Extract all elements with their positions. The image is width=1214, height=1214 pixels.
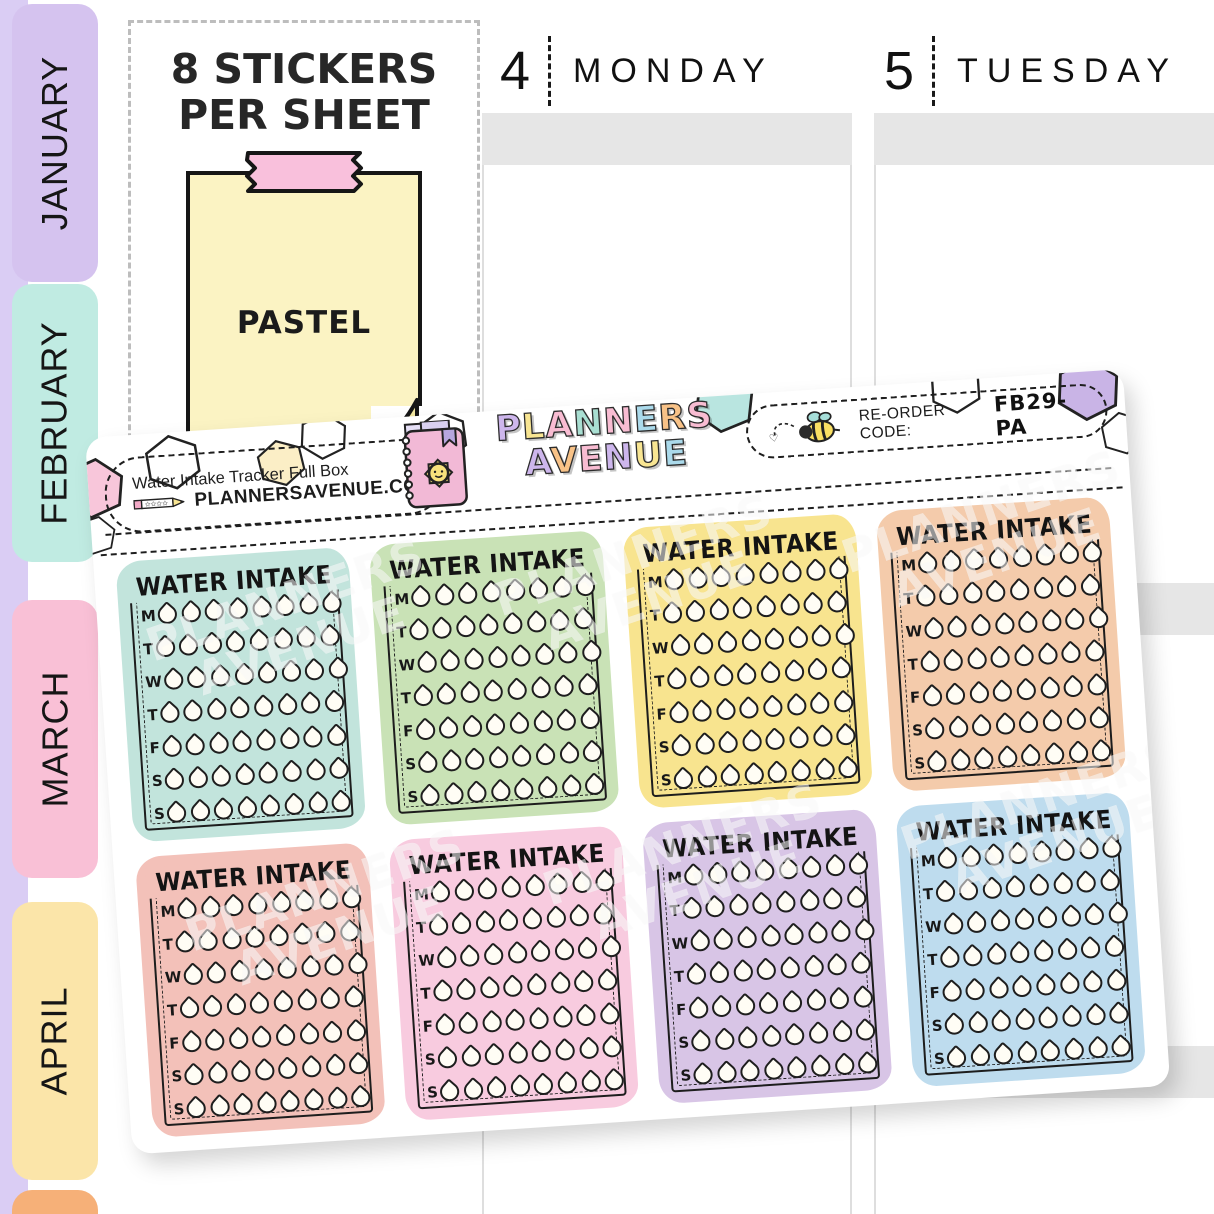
water-drop-icon xyxy=(182,732,209,759)
water-drop-icon xyxy=(504,677,531,704)
water-drop-icon xyxy=(251,1057,278,1084)
sticker-sheet: Water Intake Tracker Full Box ✩✩✩✩ PLANN… xyxy=(85,369,1170,1154)
water-drop-icon xyxy=(1056,971,1083,998)
water-drop-icon xyxy=(523,973,550,1000)
water-drop-icon xyxy=(919,683,946,710)
water-drop-icon xyxy=(714,630,741,657)
day-letter: F xyxy=(676,1001,687,1020)
water-drop-icon xyxy=(429,616,456,643)
tracker-rows: MTWTFSS xyxy=(901,543,1110,773)
water-drop-icon xyxy=(1099,835,1126,862)
water-drop-icon xyxy=(759,694,786,721)
pencil-icon: ✩✩✩✩ xyxy=(133,491,187,514)
water-drop-icon xyxy=(725,893,752,920)
water-drop-icon xyxy=(938,979,965,1006)
water-drop-icon xyxy=(523,610,550,637)
water-drop-icon xyxy=(429,979,456,1006)
water-drop-icon xyxy=(710,927,737,954)
day-letter: T xyxy=(673,967,684,986)
month-tab-april: APRIL xyxy=(12,902,98,1180)
day-letter: S xyxy=(171,1067,183,1086)
water-drop-icon xyxy=(161,767,188,794)
water-drop-icon xyxy=(688,1028,715,1055)
day-letter: F xyxy=(403,722,414,741)
water-drop-icon xyxy=(944,615,971,642)
planners-avenue-logo: PLANNERS AVENUE xyxy=(472,397,738,486)
water-drop-icon xyxy=(1011,644,1038,671)
water-drop-icon xyxy=(472,910,499,937)
tracker-row: F xyxy=(656,692,852,724)
day-letter: T xyxy=(147,706,158,725)
water-drop-icon xyxy=(252,727,279,754)
water-drop-icon xyxy=(1013,677,1040,704)
water-drop-icon xyxy=(940,912,967,939)
water-drop-icon xyxy=(223,993,250,1020)
day-letter: M xyxy=(394,589,410,608)
water-drop-icon xyxy=(505,1041,532,1068)
water-drop-icon xyxy=(668,733,695,760)
day-letter: W xyxy=(905,622,923,641)
water-drop-icon xyxy=(940,649,967,676)
water-drop-icon xyxy=(983,579,1010,606)
tracker-row: T xyxy=(400,676,596,708)
water-drop-icon xyxy=(156,701,183,728)
water-drop-icon xyxy=(531,642,558,669)
tracker-row: F xyxy=(676,988,872,1020)
bee-icon: ♡ xyxy=(765,401,851,458)
day-letter: S xyxy=(405,755,417,774)
reorder-code: FB29-PA xyxy=(993,387,1087,441)
water-drop-icon xyxy=(1081,903,1108,930)
water-drop-icon xyxy=(800,954,827,981)
water-drop-icon xyxy=(682,599,709,626)
water-drop-icon xyxy=(195,928,222,955)
water-drop-icon xyxy=(457,681,484,708)
water-drop-icon xyxy=(484,646,511,673)
water-drop-icon xyxy=(339,885,366,912)
water-drop-icon xyxy=(659,601,686,628)
water-drop-icon xyxy=(175,633,202,660)
water-drop-icon xyxy=(506,711,533,738)
tracker-row: T xyxy=(396,610,592,642)
tracker-row: T xyxy=(669,889,865,921)
water-intake-sticker-peach: WATER INTAKEMTWTFSS xyxy=(876,496,1127,792)
water-drop-icon xyxy=(575,1036,602,1063)
water-drop-icon xyxy=(776,593,803,620)
water-drop-icon xyxy=(798,855,825,882)
logo-letter: U xyxy=(632,434,664,476)
water-drop-icon xyxy=(502,1007,529,1034)
water-drop-icon xyxy=(457,944,484,971)
water-drop-icon xyxy=(965,1010,992,1037)
water-drop-icon xyxy=(751,858,778,885)
water-drop-icon xyxy=(201,1027,228,1054)
water-drop-icon xyxy=(254,661,281,688)
water-drop-icon xyxy=(1105,901,1132,928)
water-drop-icon xyxy=(1030,576,1057,603)
tracker-row: T xyxy=(142,627,338,659)
water-drop-icon xyxy=(691,632,718,659)
water-drop-icon xyxy=(528,1039,555,1066)
water-drop-icon xyxy=(772,890,799,917)
water-drop-icon xyxy=(785,626,812,653)
water-drop-icon xyxy=(962,547,989,574)
water-drop-icon xyxy=(555,641,582,668)
water-drop-icon xyxy=(222,630,249,657)
water-drop-icon xyxy=(532,742,559,769)
water-drop-icon xyxy=(1079,540,1106,567)
water-drop-icon xyxy=(1009,544,1036,571)
water-drop-icon xyxy=(525,576,552,603)
tracker-rows: MTWTFSS xyxy=(394,577,603,807)
logo-letter: N xyxy=(602,436,635,478)
water-drop-icon xyxy=(160,667,187,694)
tracker-row: T xyxy=(420,972,616,1004)
tracker-row: F xyxy=(909,676,1105,708)
water-drop-icon xyxy=(704,861,731,888)
water-drop-icon xyxy=(708,994,735,1021)
water-drop-icon xyxy=(728,860,755,887)
water-drop-icon xyxy=(578,639,605,666)
water-drop-icon xyxy=(979,876,1006,903)
water-drop-icon xyxy=(152,634,179,661)
water-drop-icon xyxy=(293,988,320,1015)
day-letter: T xyxy=(167,1001,178,1020)
day-letter: F xyxy=(422,1017,433,1036)
logo-letter: E xyxy=(577,438,605,480)
water-drop-icon xyxy=(959,581,986,608)
water-drop-icon xyxy=(546,608,573,635)
water-drop-icon xyxy=(824,953,851,980)
water-drop-icon xyxy=(278,659,305,686)
water-drop-icon xyxy=(826,986,853,1013)
water-drop-icon xyxy=(992,712,1019,739)
water-drop-icon xyxy=(828,919,855,946)
logo-letter: A xyxy=(524,442,552,484)
tracker-rows: MTWTFSS xyxy=(140,594,349,824)
water-drop-icon xyxy=(753,594,780,621)
day-letter: S xyxy=(407,788,419,807)
water-drop-icon xyxy=(678,896,705,923)
water-drop-icon xyxy=(500,974,527,1001)
water-drop-icon xyxy=(689,698,716,725)
water-drop-icon xyxy=(845,852,872,879)
day-letter: T xyxy=(927,951,938,970)
tracker-row: W xyxy=(671,922,867,954)
day-letter: W xyxy=(418,951,436,970)
water-drop-icon xyxy=(178,1029,205,1056)
water-drop-icon xyxy=(687,929,714,956)
water-drop-icon xyxy=(753,958,780,985)
water-drop-icon xyxy=(556,740,583,767)
water-drop-icon xyxy=(452,614,479,641)
day-header-tuesday: 5TUESDAY xyxy=(884,34,1178,108)
promo-heading: 8 STICKERS PER SHEET xyxy=(131,47,477,139)
water-drop-icon xyxy=(739,728,766,755)
water-drop-icon xyxy=(691,731,718,758)
water-drop-icon xyxy=(451,878,478,905)
water-intake-sticker-green: WATER INTAKEMTWTFSS xyxy=(369,530,620,826)
day-letter: T xyxy=(400,689,411,708)
tracker-row: S xyxy=(658,726,854,758)
water-drop-icon xyxy=(1052,838,1079,865)
water-drop-icon xyxy=(702,895,729,922)
water-drop-icon xyxy=(437,649,464,676)
water-drop-icon xyxy=(936,582,963,609)
water-drop-icon xyxy=(301,658,328,685)
water-drop-icon xyxy=(708,564,735,591)
water-intake-sticker-teal: WATER INTAKEMTWTFSS xyxy=(115,547,366,843)
water-drop-icon xyxy=(292,889,319,916)
water-drop-icon xyxy=(661,567,688,594)
water-drop-icon xyxy=(667,633,694,660)
water-drop-icon xyxy=(681,863,708,890)
day-header-monday: 4MONDAY xyxy=(500,34,774,108)
tracker-rows: MTWTFSS xyxy=(647,560,856,790)
water-drop-icon xyxy=(822,853,849,880)
water-drop-icon xyxy=(174,896,201,923)
water-drop-icon xyxy=(916,650,943,677)
water-drop-icon xyxy=(197,895,224,922)
water-drop-icon xyxy=(319,1020,346,1047)
water-drop-icon xyxy=(246,628,273,655)
water-drop-icon xyxy=(938,549,965,576)
day-letter: S xyxy=(154,805,166,824)
water-drop-icon xyxy=(171,930,198,957)
water-drop-icon xyxy=(706,961,733,988)
water-drop-icon xyxy=(804,921,831,948)
water-drop-icon xyxy=(1049,871,1076,898)
water-drop-icon xyxy=(736,695,763,722)
water-drop-icon xyxy=(203,697,230,724)
day-letter: S xyxy=(151,772,163,791)
water-drop-icon xyxy=(199,631,226,658)
water-drop-icon xyxy=(779,989,806,1016)
water-drop-icon xyxy=(455,581,482,608)
water-drop-icon xyxy=(255,760,282,787)
tracker-row: S xyxy=(171,1055,367,1087)
water-drop-icon xyxy=(964,647,991,674)
water-drop-icon xyxy=(549,1004,576,1031)
water-drop-icon xyxy=(227,696,254,723)
water-drop-icon xyxy=(433,946,460,973)
water-drop-icon xyxy=(521,873,548,900)
reorder-label: RE-ORDER CODE: xyxy=(858,399,984,443)
water-drop-icon xyxy=(204,1060,231,1087)
water-drop-icon xyxy=(1063,707,1090,734)
water-drop-icon xyxy=(289,922,316,949)
water-drop-icon xyxy=(476,976,503,1003)
water-drop-icon xyxy=(242,925,269,952)
water-drop-icon xyxy=(272,1023,299,1050)
day-letter: T xyxy=(922,884,933,903)
month-tab-february: FEBRUARY xyxy=(12,284,98,562)
water-drop-icon xyxy=(455,1011,482,1038)
tracker-row: W xyxy=(925,905,1121,937)
water-drop-icon xyxy=(225,1026,252,1053)
water-drop-icon xyxy=(735,1025,762,1052)
water-drop-icon xyxy=(208,764,235,791)
water-drop-icon xyxy=(806,691,833,718)
water-drop-icon xyxy=(962,977,989,1004)
water-drop-icon xyxy=(955,878,982,905)
water-intake-sticker-pink: WATER INTAKEMTWTFSS xyxy=(388,825,639,1121)
water-drop-icon xyxy=(985,546,1012,573)
water-drop-icon xyxy=(757,661,784,688)
water-drop-icon xyxy=(276,726,303,753)
tracker-row: S xyxy=(912,709,1108,741)
day-letter: S xyxy=(427,1084,439,1103)
day-letter: S xyxy=(680,1067,692,1086)
day-letter: F xyxy=(909,688,920,707)
water-drop-icon xyxy=(526,1006,553,1033)
water-drop-icon xyxy=(711,1027,738,1054)
tracker-row: W xyxy=(418,938,614,970)
month-tab-march: MARCH xyxy=(12,600,98,878)
water-drop-icon xyxy=(504,941,531,968)
water-drop-icon xyxy=(1054,938,1081,965)
water-drop-icon xyxy=(1080,969,1107,996)
water-drop-icon xyxy=(248,595,275,622)
water-drop-icon xyxy=(218,927,245,954)
water-drop-icon xyxy=(781,922,808,949)
water-drop-icon xyxy=(458,1044,485,1071)
tracker-row: F xyxy=(929,971,1125,1003)
water-drop-icon xyxy=(272,593,299,620)
water-drop-icon xyxy=(987,645,1014,672)
water-drop-icon xyxy=(319,590,346,617)
water-drop-icon xyxy=(1034,906,1061,933)
water-drop-icon xyxy=(474,876,501,903)
water-drop-icon xyxy=(485,745,512,772)
water-drop-icon xyxy=(553,707,580,734)
day-number: 4 xyxy=(500,40,530,102)
product-image: JANUARYFEBRUARYMARCHAPRIL 4MONDAY5TUESDA… xyxy=(0,0,1214,1214)
tracker-row: S xyxy=(931,1004,1127,1036)
water-drop-icon xyxy=(915,551,942,578)
water-drop-icon xyxy=(405,618,432,645)
day-letter: F xyxy=(656,705,667,724)
water-drop-icon xyxy=(410,684,437,711)
day-letter: M xyxy=(160,902,176,921)
day-letter: S xyxy=(678,1034,690,1053)
tracker-row: S xyxy=(678,1021,874,1053)
water-drop-icon xyxy=(527,676,554,703)
water-drop-icon xyxy=(762,727,789,754)
day-letter: S xyxy=(424,1050,436,1069)
water-drop-icon xyxy=(989,678,1016,705)
tracker-rows: MTWTFSS xyxy=(413,872,622,1102)
water-drop-icon xyxy=(438,748,465,775)
water-drop-icon xyxy=(819,887,846,914)
water-drop-icon xyxy=(1039,708,1066,735)
tracker-row: T xyxy=(147,693,343,725)
water-drop-icon xyxy=(921,617,948,644)
water-drop-icon xyxy=(199,994,226,1021)
water-drop-icon xyxy=(298,1054,325,1081)
water-drop-icon xyxy=(985,975,1012,1002)
water-drop-icon xyxy=(529,709,556,736)
water-drop-icon xyxy=(201,598,228,625)
day-letter: T xyxy=(396,623,407,642)
water-drop-icon xyxy=(268,890,295,917)
water-drop-icon xyxy=(715,730,742,757)
water-drop-icon xyxy=(851,918,878,945)
water-drop-icon xyxy=(431,583,458,610)
water-drop-icon xyxy=(433,682,460,709)
water-drop-icon xyxy=(1007,941,1034,968)
day-name: MONDAY xyxy=(573,52,774,91)
water-drop-icon xyxy=(783,692,810,719)
water-drop-icon xyxy=(545,872,572,899)
day-letter: S xyxy=(931,1017,943,1036)
logo-letter: V xyxy=(549,440,580,482)
day-letter: M xyxy=(413,885,429,904)
water-drop-icon xyxy=(758,1024,785,1051)
sticky-note-label: PASTEL xyxy=(190,305,418,341)
water-drop-icon xyxy=(570,970,597,997)
water-drop-icon xyxy=(1038,609,1065,636)
water-drop-icon xyxy=(800,591,827,618)
water-drop-icon xyxy=(960,944,987,971)
water-drop-icon xyxy=(425,913,452,940)
water-drop-icon xyxy=(968,613,995,640)
planner-section-bar xyxy=(874,113,1214,165)
water-drop-icon xyxy=(325,656,352,683)
water-drop-icon xyxy=(1028,840,1055,867)
water-drop-icon xyxy=(476,613,503,640)
tracker-rows: MTWTFSS xyxy=(920,839,1129,1069)
day-letter: M xyxy=(140,606,156,625)
water-drop-icon xyxy=(300,724,327,751)
water-drop-icon xyxy=(527,939,554,966)
water-drop-icon xyxy=(298,955,325,982)
water-drop-icon xyxy=(415,750,442,777)
water-drop-icon xyxy=(941,1012,968,1039)
water-drop-icon xyxy=(227,959,254,986)
water-drop-icon xyxy=(322,1053,349,1080)
water-drop-icon xyxy=(921,716,948,743)
tracker-row: T xyxy=(416,905,612,937)
water-drop-icon xyxy=(481,1042,508,1069)
tracker-row: T xyxy=(673,955,869,987)
water-drop-icon xyxy=(575,936,602,963)
tracker-row: W xyxy=(398,643,594,675)
day-letter: S xyxy=(912,721,924,740)
day-number: 5 xyxy=(884,40,914,102)
tracker-row: F xyxy=(403,709,599,741)
water-drop-icon xyxy=(968,713,995,740)
water-drop-icon xyxy=(710,664,737,691)
day-letter: M xyxy=(920,851,936,870)
water-drop-icon xyxy=(683,962,710,989)
water-drop-icon xyxy=(572,573,599,600)
water-drop-icon xyxy=(1058,641,1085,668)
tracker-row: F xyxy=(169,1021,365,1053)
water-drop-icon xyxy=(981,843,1008,870)
water-drop-icon xyxy=(203,961,230,988)
day-letter: T xyxy=(416,918,427,937)
day-letter: T xyxy=(162,935,173,954)
water-drop-icon xyxy=(295,592,322,619)
water-drop-icon xyxy=(293,625,320,652)
water-drop-icon xyxy=(829,1019,856,1046)
water-drop-icon xyxy=(1036,675,1063,702)
water-intake-sticker-yellow: WATER INTAKEMTWTFSS xyxy=(622,513,873,809)
water-drop-icon xyxy=(782,1022,809,1049)
tracker-row: T xyxy=(903,576,1099,608)
water-drop-icon xyxy=(1082,1002,1109,1029)
